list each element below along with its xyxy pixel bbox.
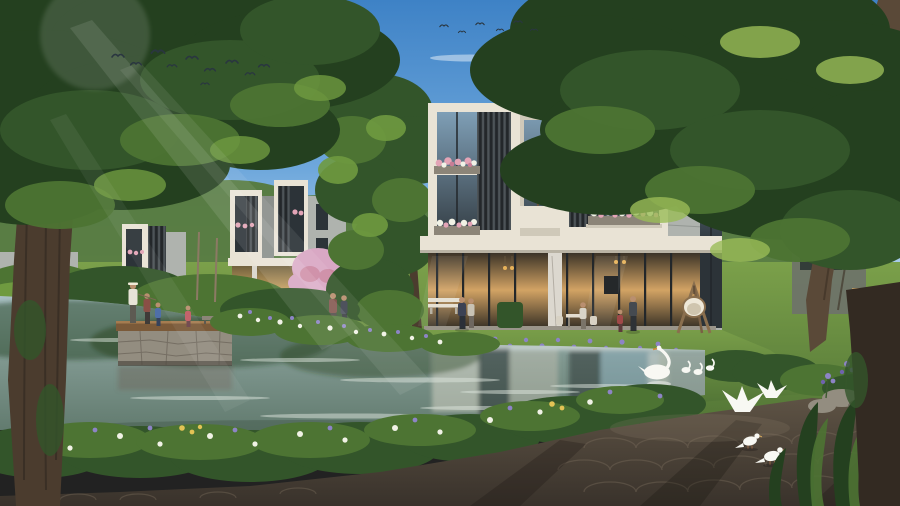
rendered-scene [0, 0, 900, 506]
terrace-planter [516, 206, 562, 228]
swan-beak [653, 349, 657, 350]
lakeside-villas-render [0, 0, 900, 506]
sunlit-path-patch [610, 414, 790, 442]
ground-floor-fascia [420, 236, 722, 252]
